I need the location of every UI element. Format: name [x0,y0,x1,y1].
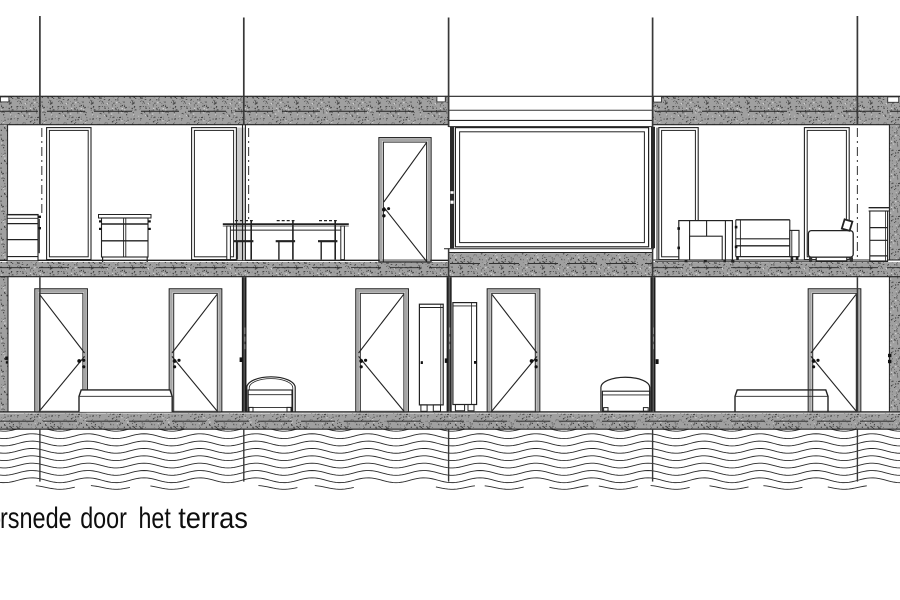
svg-text:terras: terras [178,502,248,535]
svg-text:rsnede: rsnede [0,501,72,534]
svg-text:door: door [80,501,127,534]
svg-text:het: het [139,501,172,534]
